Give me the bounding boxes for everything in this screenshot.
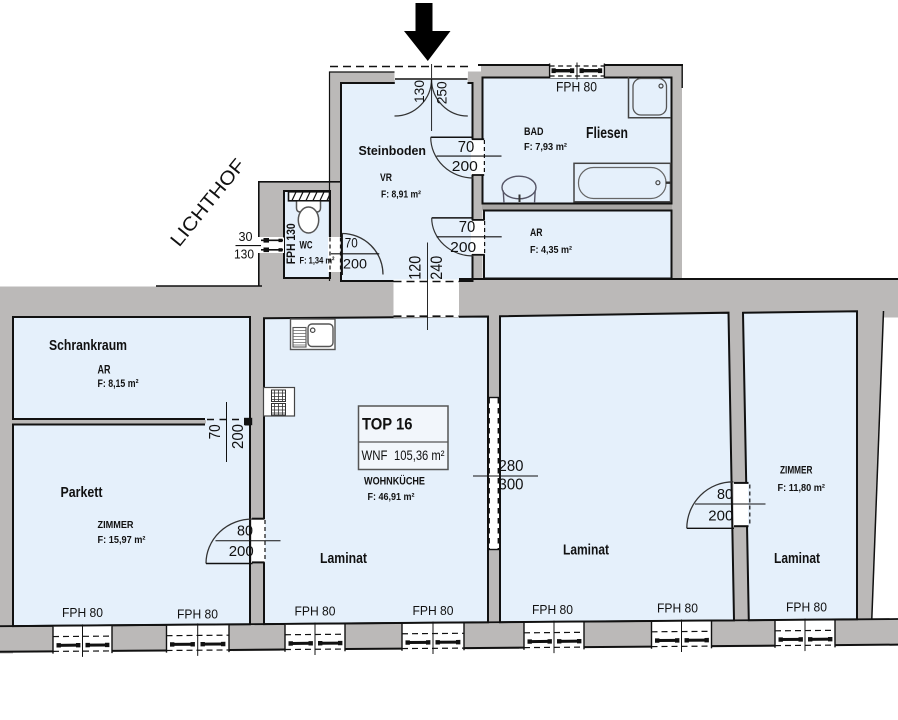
svg-text:70: 70 (207, 424, 224, 439)
svg-text:AR: AR (530, 227, 543, 239)
svg-text:30: 30 (239, 230, 253, 244)
svg-text:80: 80 (717, 486, 733, 503)
svg-text:200: 200 (708, 508, 733, 525)
svg-text:F: 46,91 m²: F: 46,91 m² (368, 491, 415, 503)
svg-text:FPH 80: FPH 80 (532, 602, 573, 617)
svg-text:WC: WC (300, 240, 313, 252)
svg-text:Steinboden: Steinboden (359, 143, 427, 158)
svg-text:FPH 80: FPH 80 (657, 601, 698, 616)
svg-text:FPH 80: FPH 80 (62, 605, 103, 620)
svg-text:120: 120 (406, 256, 425, 280)
svg-text:ZIMMER: ZIMMER (98, 519, 134, 531)
svg-text:WOHNKÜCHE: WOHNKÜCHE (364, 475, 425, 488)
svg-text:FPH 80: FPH 80 (786, 600, 827, 615)
svg-text:F: 8,15 m²: F: 8,15 m² (98, 378, 139, 390)
svg-text:F: 11,80 m²: F: 11,80 m² (778, 482, 826, 494)
svg-text:200: 200 (343, 255, 367, 271)
svg-text:70: 70 (459, 219, 476, 236)
svg-text:200: 200 (450, 239, 476, 256)
svg-text:FPH 130: FPH 130 (286, 223, 298, 264)
svg-text:FPH 80: FPH 80 (295, 604, 336, 619)
svg-text:250: 250 (433, 81, 449, 104)
svg-text:200: 200 (452, 158, 478, 175)
svg-text:300: 300 (499, 476, 524, 493)
svg-text:Laminat: Laminat (563, 543, 609, 559)
svg-text:70: 70 (458, 139, 475, 156)
svg-text:AR: AR (98, 363, 111, 377)
svg-text:FPH 80: FPH 80 (177, 607, 218, 622)
svg-text:VR: VR (380, 172, 392, 184)
svg-text:Fliesen: Fliesen (586, 125, 628, 142)
svg-text:F: 8,91 m²: F: 8,91 m² (381, 189, 421, 201)
svg-text:Parkett: Parkett (61, 485, 103, 501)
svg-text:F: 1,34 m²: F: 1,34 m² (300, 256, 335, 267)
svg-text:130: 130 (411, 80, 427, 103)
svg-text:TOP 16: TOP 16 (362, 415, 413, 434)
svg-text:F: 7,93 m²: F: 7,93 m² (524, 141, 567, 153)
svg-text:ZIMMER: ZIMMER (780, 464, 813, 476)
svg-text:Laminat: Laminat (320, 551, 367, 567)
svg-text:280: 280 (499, 458, 524, 475)
svg-text:F: 15,97 m²: F: 15,97 m² (98, 534, 146, 546)
svg-text:130: 130 (234, 248, 254, 262)
svg-text:200: 200 (229, 543, 254, 560)
svg-text:F: 4,35 m²: F: 4,35 m² (530, 244, 572, 256)
svg-text:WNF: WNF (362, 448, 388, 463)
svg-text:200: 200 (230, 424, 247, 449)
svg-text:BAD: BAD (524, 126, 544, 138)
svg-text:Laminat: Laminat (774, 551, 820, 567)
svg-text:FPH 80: FPH 80 (413, 603, 454, 618)
svg-text:240: 240 (427, 256, 446, 280)
svg-text:Schrankraum: Schrankraum (49, 337, 127, 354)
svg-text:105,36 m²: 105,36 m² (394, 448, 445, 463)
svg-text:70: 70 (345, 234, 358, 250)
svg-text:FPH 80: FPH 80 (556, 79, 597, 95)
svg-text:80: 80 (237, 522, 253, 539)
